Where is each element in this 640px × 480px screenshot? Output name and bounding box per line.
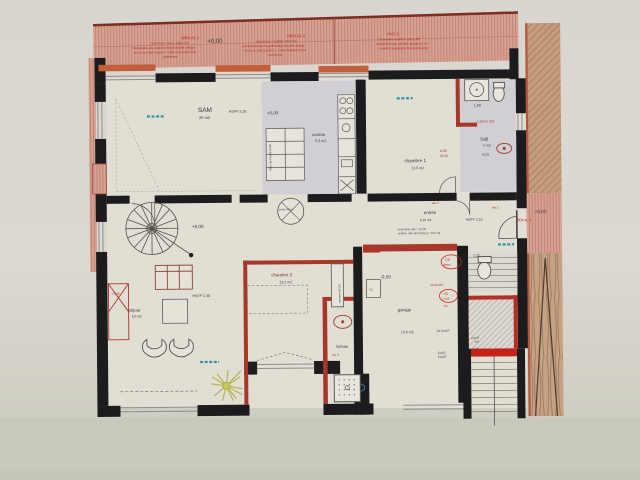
svg-text:EXIST: EXIST [438, 355, 447, 359]
svg-text:14,6 m2: 14,6 m2 [401, 330, 414, 334]
svg-text:19 m2: 19 m2 [132, 315, 142, 319]
svg-text:6,10 m2: 6,10 m2 [420, 218, 432, 222]
svg-text:déco: déco [443, 263, 451, 267]
svg-text:surface utile (loi Carrez) = 1: surface utile (loi Carrez) = 104 m2 [398, 231, 441, 235]
svg-text:persienne: persienne [268, 53, 282, 57]
svg-text:5 m2: 5 m2 [483, 144, 491, 148]
svg-text:cuisine: cuisine [312, 132, 326, 137]
svg-text:+0,00: +0,00 [207, 39, 223, 45]
svg-text:MEN AL 3: MEN AL 3 [516, 218, 531, 222]
svg-text:+0,03: +0,03 [439, 154, 448, 158]
svg-text:SdB: SdB [480, 137, 488, 142]
svg-text:11,5 m2: 11,5 m2 [411, 166, 424, 170]
svg-text:res: res [444, 304, 449, 308]
svg-text:13,2 m2: 13,2 m2 [279, 280, 292, 284]
svg-text:-0,05: -0,05 [439, 149, 447, 153]
svg-text:+1,00: +1,00 [111, 292, 119, 296]
svg-text:1,80: 1,80 [474, 104, 481, 108]
svg-text:res 2: res 2 [432, 201, 439, 205]
svg-text:res 1: res 1 [492, 205, 499, 209]
svg-text:PVC 2: PVC 2 [387, 31, 399, 36]
svg-text:élv.EXIST: élv.EXIST [430, 283, 443, 287]
svg-text:res 8: res 8 [332, 353, 339, 357]
svg-text:HSFP 2,19: HSFP 2,19 [466, 218, 483, 222]
svg-text:LL: LL [369, 288, 373, 292]
svg-text:1,20 AL 5/9: 1,20 AL 5/9 [477, 119, 494, 123]
svg-text:chambre 1: chambre 1 [404, 158, 426, 163]
svg-text:CE: CE [445, 258, 450, 262]
svg-text:HSFP 2,38: HSFP 2,38 [192, 294, 210, 298]
svg-text:+0,15: +0,15 [481, 153, 489, 157]
svg-text:HSFP 2,35: HSFP 2,35 [229, 110, 247, 114]
svg-text:-0,50: -0,50 [380, 274, 391, 279]
svg-text:chambre 2: chambre 2 [271, 272, 292, 277]
svg-text:1,32: 1,32 [473, 254, 480, 258]
svg-text:armoire 60/120: armoire 60/120 [337, 284, 341, 303]
svg-text:persienne: persienne [163, 55, 177, 59]
svg-text:s/h: s/h [475, 340, 479, 344]
svg-text:plan de travail ht 90: plan de travail ht 90 [268, 144, 272, 171]
svg-text:5,3 m2: 5,3 m2 [315, 139, 326, 143]
svg-text:CE: CE [443, 292, 447, 296]
svg-text:Sd'eau: Sd'eau [336, 344, 348, 349]
svg-text:EJ EXIST: EJ EXIST [437, 329, 450, 333]
svg-text:MEN AL 1: MEN AL 1 [181, 35, 200, 40]
svg-text:MEN AL 2: MEN AL 2 [287, 33, 306, 38]
svg-text:SAM: SAM [198, 107, 212, 114]
svg-text:entrée: entrée [424, 210, 437, 215]
svg-text:poele bois 1: poele bois 1 [279, 207, 295, 211]
svg-text:+0,00: +0,00 [535, 209, 547, 214]
svg-text:+0,00: +0,00 [267, 110, 279, 115]
svg-text:20 m2: 20 m2 [199, 115, 211, 120]
svg-text:1,44: 1,44 [473, 347, 479, 351]
svg-text:+ volets coulissants bois pers: + volets coulissants bois persienne [378, 46, 428, 50]
svg-text:garage: garage [398, 307, 412, 312]
svg-text:Lor3: Lor3 [443, 297, 450, 301]
svg-text:+0,00: +0,00 [192, 224, 204, 229]
svg-text:séjour: séjour [129, 308, 142, 313]
